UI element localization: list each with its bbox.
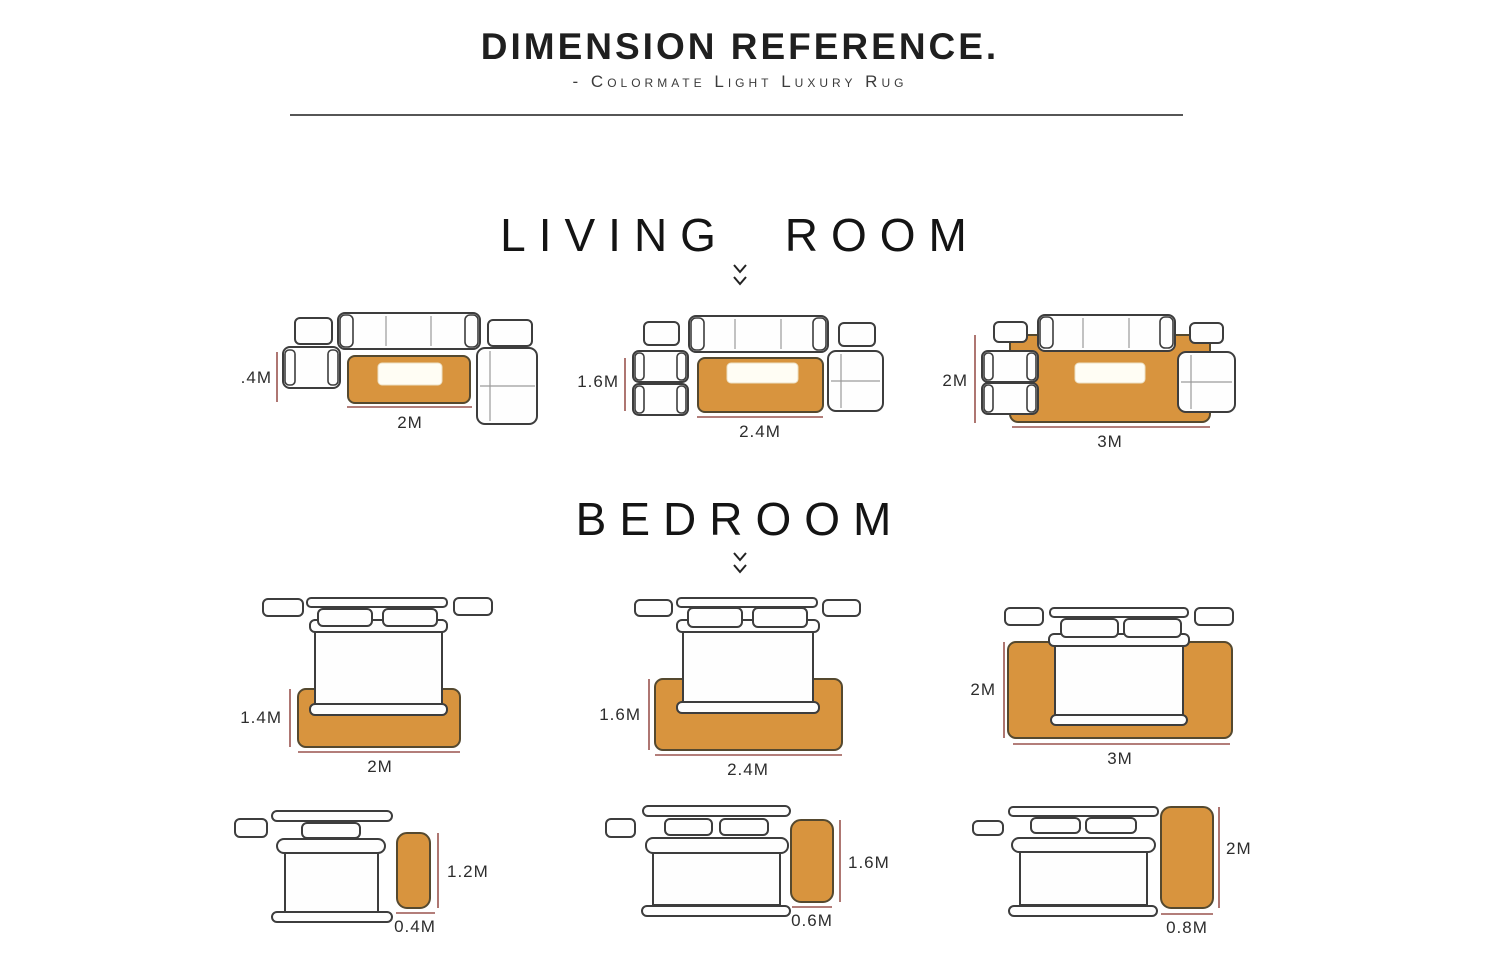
rug-height-label: 1.6M bbox=[565, 372, 619, 392]
headboard bbox=[272, 811, 392, 821]
coffee-table bbox=[1075, 363, 1145, 383]
rug-shape bbox=[397, 833, 430, 908]
rug-height-label: .4M bbox=[230, 368, 272, 388]
side-table bbox=[295, 318, 332, 344]
headboard bbox=[1009, 807, 1158, 816]
living-room-layout-1: .4M 2M bbox=[230, 305, 560, 455]
bedroom-layout-2: 1.6M 2.4M bbox=[590, 590, 890, 785]
rug-height-label: 1.4M bbox=[230, 708, 282, 728]
bed bbox=[1055, 642, 1183, 720]
bed-foot-bar bbox=[272, 912, 392, 922]
rug-height-label: 1.2M bbox=[447, 862, 489, 882]
divider-line bbox=[290, 114, 1183, 116]
down-chevrons-icon bbox=[722, 262, 758, 292]
pillow bbox=[665, 819, 712, 835]
side-table bbox=[644, 322, 679, 345]
living-room-layout-3: 2M 3M bbox=[920, 295, 1280, 460]
rug-width-label: 0.4M bbox=[375, 917, 455, 937]
rug-shape bbox=[1161, 807, 1213, 908]
rug-height-label: 1.6M bbox=[590, 705, 641, 725]
headboard bbox=[677, 598, 817, 607]
rug-width-label: 3M bbox=[1050, 432, 1170, 452]
nightstand bbox=[1195, 608, 1233, 625]
coffee-table bbox=[378, 363, 442, 385]
nightstand bbox=[235, 819, 267, 837]
bedroom-layout-1: 1.4M 2M bbox=[230, 590, 520, 785]
pillow bbox=[302, 823, 360, 838]
duvet-fold bbox=[646, 838, 788, 853]
rug-width-label: 0.8M bbox=[1147, 918, 1227, 938]
rug-width-label: 3M bbox=[1060, 749, 1180, 769]
rug-height-label: 1.6M bbox=[848, 853, 890, 873]
nightstand bbox=[973, 821, 1003, 835]
bedroom-heading: BEDROOM bbox=[0, 492, 1480, 546]
pillow bbox=[1086, 818, 1136, 833]
bedside-runner-layout-1: 1.2M 0.4M bbox=[225, 790, 505, 940]
bed bbox=[1020, 852, 1147, 905]
living-room-heading: LIVING ROOM bbox=[0, 208, 1480, 262]
pillow bbox=[1031, 818, 1080, 833]
rug-width-label: 2.4M bbox=[688, 760, 808, 780]
nightstand bbox=[823, 600, 860, 616]
duvet-fold bbox=[1012, 838, 1155, 852]
side-table bbox=[488, 320, 532, 346]
bed bbox=[683, 620, 813, 708]
down-chevrons-icon bbox=[722, 550, 758, 580]
page-title: DIMENSION REFERENCE. bbox=[0, 26, 1480, 68]
bedside-runner-layout-3: 2M 0.8M bbox=[950, 785, 1260, 945]
pillow bbox=[720, 819, 768, 835]
rug-height-label: 2M bbox=[940, 680, 996, 700]
rug-width-label: 2.4M bbox=[700, 422, 820, 442]
bed-foot-bar bbox=[677, 702, 819, 713]
bed-foot-bar bbox=[642, 906, 790, 916]
side-table bbox=[839, 323, 875, 346]
coffee-table bbox=[727, 363, 798, 383]
rug-width-label: 0.6M bbox=[772, 911, 852, 931]
sofa bbox=[689, 316, 828, 352]
rug-shape bbox=[791, 820, 833, 902]
bed-foot-bar bbox=[1009, 906, 1157, 916]
rug-height-label: 2M bbox=[920, 371, 968, 391]
headboard bbox=[1050, 608, 1188, 617]
headboard bbox=[307, 598, 447, 607]
bedside-runner-layout-2: 1.6M 0.6M bbox=[590, 790, 890, 940]
bedroom-layout-3: 2M 3M bbox=[940, 590, 1260, 785]
nightstand bbox=[635, 600, 672, 616]
rug-height-label: 2M bbox=[1226, 839, 1252, 859]
headboard bbox=[643, 806, 790, 816]
page-subtitle: - Colormate Light Luxury Rug bbox=[0, 72, 1480, 92]
side-table bbox=[994, 322, 1027, 342]
bed bbox=[653, 853, 780, 905]
pillow bbox=[1061, 619, 1118, 637]
rug-width-label: 2M bbox=[320, 757, 440, 777]
bed-foot-bar bbox=[310, 704, 447, 715]
bed bbox=[285, 853, 378, 913]
pillow bbox=[318, 609, 372, 626]
side-table bbox=[1190, 323, 1223, 343]
bed bbox=[315, 620, 442, 712]
pillow bbox=[753, 608, 807, 627]
nightstand bbox=[263, 599, 303, 616]
sofa bbox=[338, 313, 480, 349]
duvet-fold bbox=[277, 839, 385, 853]
rug-width-label: 2M bbox=[350, 413, 470, 433]
pillow bbox=[383, 609, 437, 626]
nightstand bbox=[606, 819, 635, 837]
nightstand bbox=[454, 598, 492, 615]
living-room-layout-2: 1.6M 2.4M bbox=[565, 300, 910, 455]
nightstand bbox=[1005, 608, 1043, 625]
dimension-reference-page: DIMENSION REFERENCE. - Colormate Light L… bbox=[0, 0, 1500, 969]
bed-foot-bar bbox=[1051, 715, 1187, 725]
pillow bbox=[688, 608, 742, 627]
sofa bbox=[1038, 315, 1175, 351]
pillow bbox=[1124, 619, 1181, 637]
